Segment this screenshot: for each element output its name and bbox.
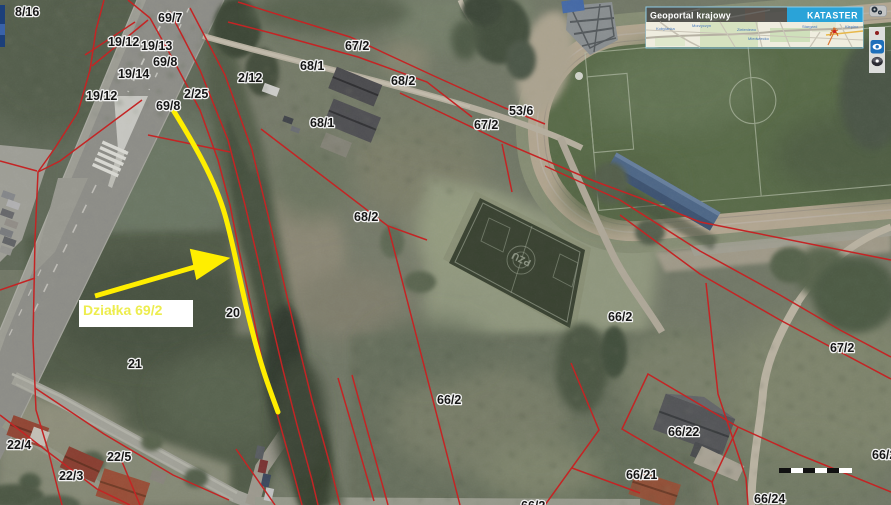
svg-text:68/1: 68/1: [300, 59, 324, 73]
svg-text:66/24: 66/24: [754, 492, 785, 505]
svg-text:68/2: 68/2: [391, 74, 415, 88]
svg-text:22/4: 22/4: [7, 438, 31, 452]
svg-text:22/5: 22/5: [107, 450, 131, 464]
svg-text:67/2: 67/2: [474, 118, 498, 132]
svg-text:69/8: 69/8: [156, 99, 180, 113]
svg-text:2/12: 2/12: [238, 71, 262, 85]
svg-text:19/12: 19/12: [108, 35, 139, 49]
svg-text:Morzyczyn: Morzyczyn: [692, 23, 711, 28]
svg-text:KATASTER: KATASTER: [807, 11, 858, 21]
svg-text:22/3: 22/3: [59, 469, 83, 483]
svg-text:66/2: 66/2: [608, 310, 632, 324]
svg-text:2/25: 2/25: [184, 87, 208, 101]
svg-text:53/6: 53/6: [509, 104, 533, 118]
svg-text:19/14: 19/14: [118, 67, 149, 81]
svg-text:21: 21: [128, 357, 142, 371]
svg-text:Stargard: Stargard: [802, 24, 817, 29]
svg-text:66/22: 66/22: [668, 425, 699, 439]
svg-text:8/16: 8/16: [15, 5, 39, 19]
svg-text:20: 20: [226, 306, 240, 320]
svg-text:66/21: 66/21: [626, 468, 657, 482]
svg-text:66/2: 66/2: [521, 499, 545, 505]
svg-text:67/2: 67/2: [830, 341, 854, 355]
svg-text:Działka 69/2: Działka 69/2: [83, 302, 163, 318]
svg-text:68/1: 68/1: [310, 116, 334, 130]
svg-text:Geoportal krajowy: Geoportal krajowy: [650, 11, 731, 21]
svg-text:Zieleniewo: Zieleniewo: [737, 27, 757, 32]
svg-text:67/2: 67/2: [345, 39, 369, 53]
svg-text:66/2: 66/2: [872, 448, 891, 462]
svg-text:19/13: 19/13: [141, 39, 172, 53]
svg-text:66/2: 66/2: [437, 393, 461, 407]
svg-text:Klepino: Klepino: [845, 24, 859, 29]
svg-text:Miedwiecko: Miedwiecko: [748, 36, 770, 41]
svg-text:19/12: 19/12: [86, 89, 117, 103]
svg-text:68/2: 68/2: [354, 210, 378, 224]
svg-text:69/7: 69/7: [158, 11, 182, 25]
svg-text:69/8: 69/8: [153, 55, 177, 69]
svg-text:Kobylanka: Kobylanka: [656, 26, 675, 31]
